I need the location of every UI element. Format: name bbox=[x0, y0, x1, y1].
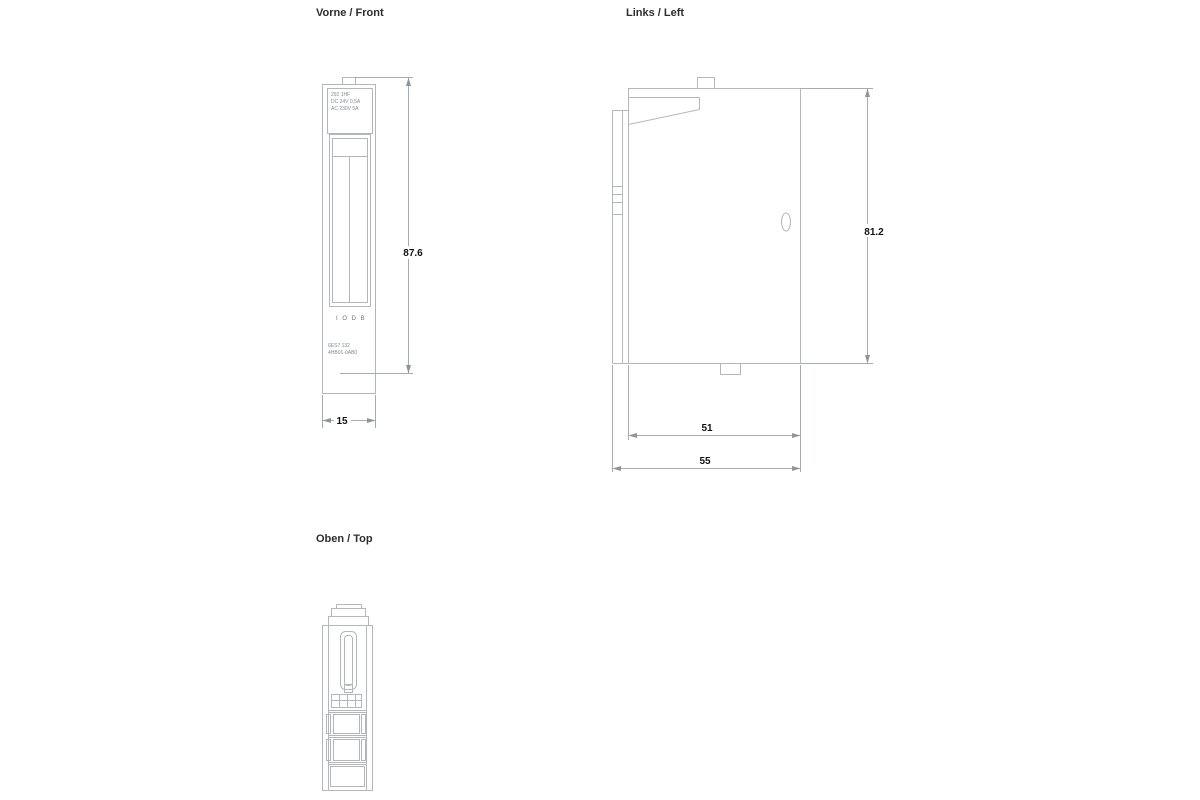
top-center-slot-inner bbox=[345, 636, 353, 686]
dim-left-height: 81.2 bbox=[864, 227, 884, 238]
front-height-dimension: 87.6 bbox=[340, 78, 427, 374]
dim-left-depth-outer: 55 bbox=[699, 456, 711, 467]
front-label-line-3: AC 230V 5A bbox=[331, 106, 359, 112]
front-part-number-line-2: 4HB01-0AB0 bbox=[328, 350, 357, 356]
front-view: 292 1HF DC 24V 0,5A AC 230V 5A I O D B 6… bbox=[323, 78, 376, 394]
top-connector-flange bbox=[329, 617, 369, 626]
left-front-ticks bbox=[613, 187, 623, 215]
left-body-outline bbox=[629, 89, 801, 364]
left-top-tab bbox=[698, 78, 715, 89]
dim-left-depth-inner: 51 bbox=[701, 423, 713, 434]
front-label-line-2: DC 24V 0,5A bbox=[331, 99, 361, 105]
top-compartment-2 bbox=[327, 740, 366, 761]
dimension-drawing: Vorne / Front Links / Left Oben / Top 29… bbox=[0, 0, 1200, 800]
left-depth-dimensions: 51 55 bbox=[613, 365, 801, 472]
front-marking-row: I O D B bbox=[336, 316, 366, 322]
top-view-title: Oben / Top bbox=[316, 533, 373, 545]
top-bottom-section bbox=[331, 767, 365, 787]
dim-front-height: 87.6 bbox=[403, 248, 423, 259]
left-oval-detail bbox=[782, 213, 791, 231]
front-width-dimension: 15 bbox=[323, 395, 376, 428]
left-bottom-tab bbox=[721, 364, 741, 375]
front-label-line-1: 292 1HF bbox=[331, 92, 350, 98]
left-slanted-edge bbox=[629, 110, 700, 125]
left-view bbox=[613, 78, 801, 375]
front-view-title: Vorne / Front bbox=[316, 7, 384, 19]
dim-front-width: 15 bbox=[336, 416, 348, 427]
front-part-number-line-1: 6ES7 132 bbox=[328, 343, 350, 349]
top-compartment-1 bbox=[327, 715, 366, 734]
front-top-tab bbox=[343, 78, 356, 85]
top-view bbox=[323, 605, 373, 791]
top-center-slot-outer bbox=[341, 632, 357, 690]
left-view-title: Links / Left bbox=[626, 7, 684, 19]
left-height-dimension: 81.2 bbox=[801, 89, 891, 364]
top-connector-cap bbox=[332, 609, 366, 617]
top-terminal-grid bbox=[332, 695, 362, 708]
